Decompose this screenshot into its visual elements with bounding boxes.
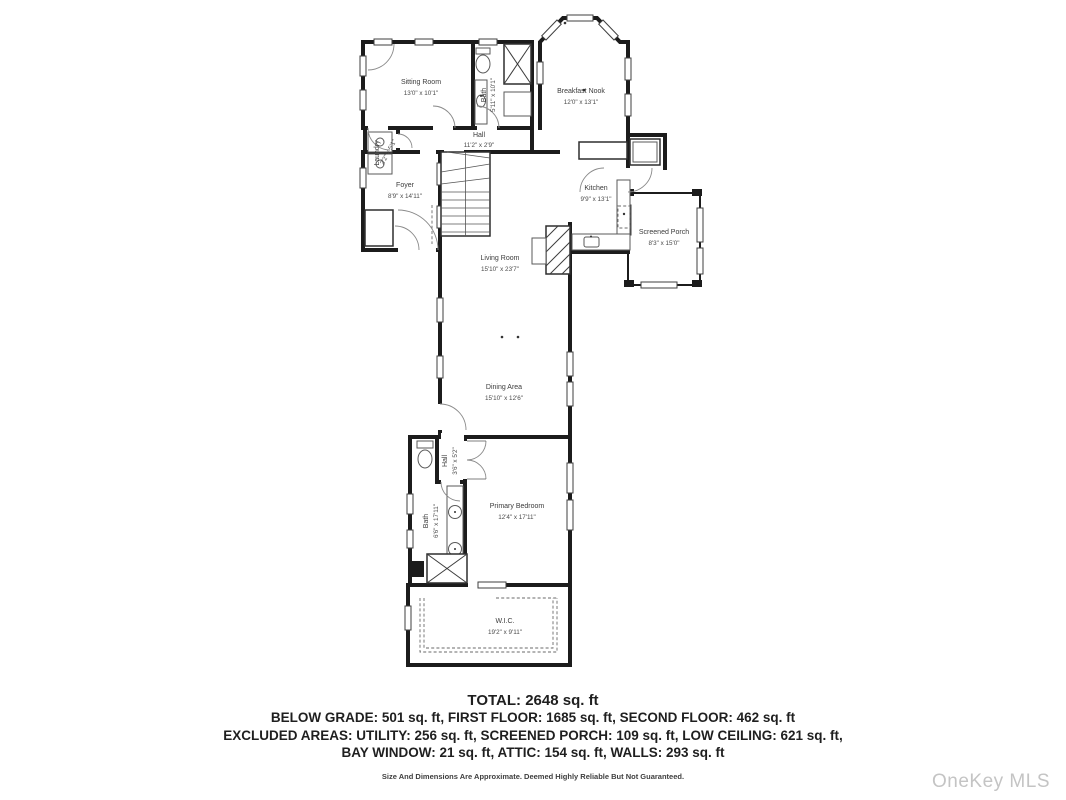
label-breakfast-nook: Breakfast Nook	[557, 88, 605, 95]
room-primary-bedroom	[465, 437, 570, 585]
label-hall-low: Hall	[442, 455, 449, 468]
label-wic: W.I.C.	[495, 618, 514, 625]
label-sitting-room: Sitting Room	[401, 79, 441, 86]
label-hall-top: Hall	[473, 132, 486, 139]
label-living-room: Living Room	[481, 255, 520, 262]
dims-foyer: 8'9" x 14'11"	[388, 193, 422, 200]
dims-sitting-room: 13'0" x 10'1"	[404, 90, 439, 97]
label-foyer: Foyer	[396, 182, 415, 189]
label-screened-porch: Screened Porch	[639, 229, 689, 236]
dims-wic: 19'2" x 9'11"	[488, 629, 522, 636]
room-wic	[408, 585, 570, 665]
toilet-icon-2	[417, 441, 433, 468]
floors-area-line: BELOW GRADE: 501 sq. ft, FIRST FLOOR: 16…	[0, 709, 1066, 727]
dims-dining-area: 15'10" x 12'6"	[485, 395, 523, 402]
dims-bath-top: 5'11" x 10'1"	[490, 78, 497, 112]
excluded-area-line-2: BAY WINDOW: 21 sq. ft, ATTIC: 154 sq. ft…	[0, 744, 1066, 762]
label-kitchen: Kitchen	[584, 185, 607, 192]
onekey-mls-watermark: OneKey MLS	[932, 771, 1050, 793]
area-summary: TOTAL: 2648 sq. ft BELOW GRADE: 501 sq. …	[0, 692, 1066, 781]
dims-breakfast-nook: 12'0" x 13'1"	[564, 99, 599, 106]
pantry-icon	[630, 139, 660, 165]
label-primary-bedroom: Primary Bedroom	[490, 503, 545, 510]
shower-icon	[504, 44, 531, 116]
toilet-icon	[476, 48, 490, 73]
total-area-line: TOTAL: 2648 sq. ft	[0, 692, 1066, 709]
dims-hall-low: 3'6" x 5'2"	[452, 447, 459, 475]
disclaimer-text: Size And Dimensions Are Approximate. Dee…	[0, 772, 1066, 781]
dims-screened-porch: 8'3" x 15'0"	[648, 240, 679, 247]
dims-living-room: 15'10" x 23'7"	[481, 266, 519, 273]
floor-plan-drawing: Sitting Room 13'0" x 10'1" Bath 5'11" x …	[0, 0, 1066, 800]
dims-hall-top: 11'2" x 2'9"	[464, 142, 495, 149]
dims-primary-bedroom: 12'4" x 17'11"	[498, 514, 536, 521]
excluded-area-line: EXCLUDED AREAS: UTILITY: 256 sq. ft, SCR…	[0, 727, 1066, 745]
room-screened-porch	[628, 193, 700, 285]
kitchen-island-icon	[579, 142, 627, 159]
shower-icon-2	[427, 554, 467, 583]
label-dining-area: Dining Area	[486, 384, 522, 391]
stairs-icon	[441, 152, 490, 236]
dims-bath-low: 6'6" x 17'11"	[433, 504, 440, 538]
label-bath-low: Bath	[423, 514, 430, 529]
floor-plan-page: Sitting Room 13'0" x 10'1" Bath 5'11" x …	[0, 0, 1066, 800]
label-bath-top: Bath	[481, 88, 488, 103]
dims-kitchen: 9'9" x 13'1"	[580, 196, 611, 203]
